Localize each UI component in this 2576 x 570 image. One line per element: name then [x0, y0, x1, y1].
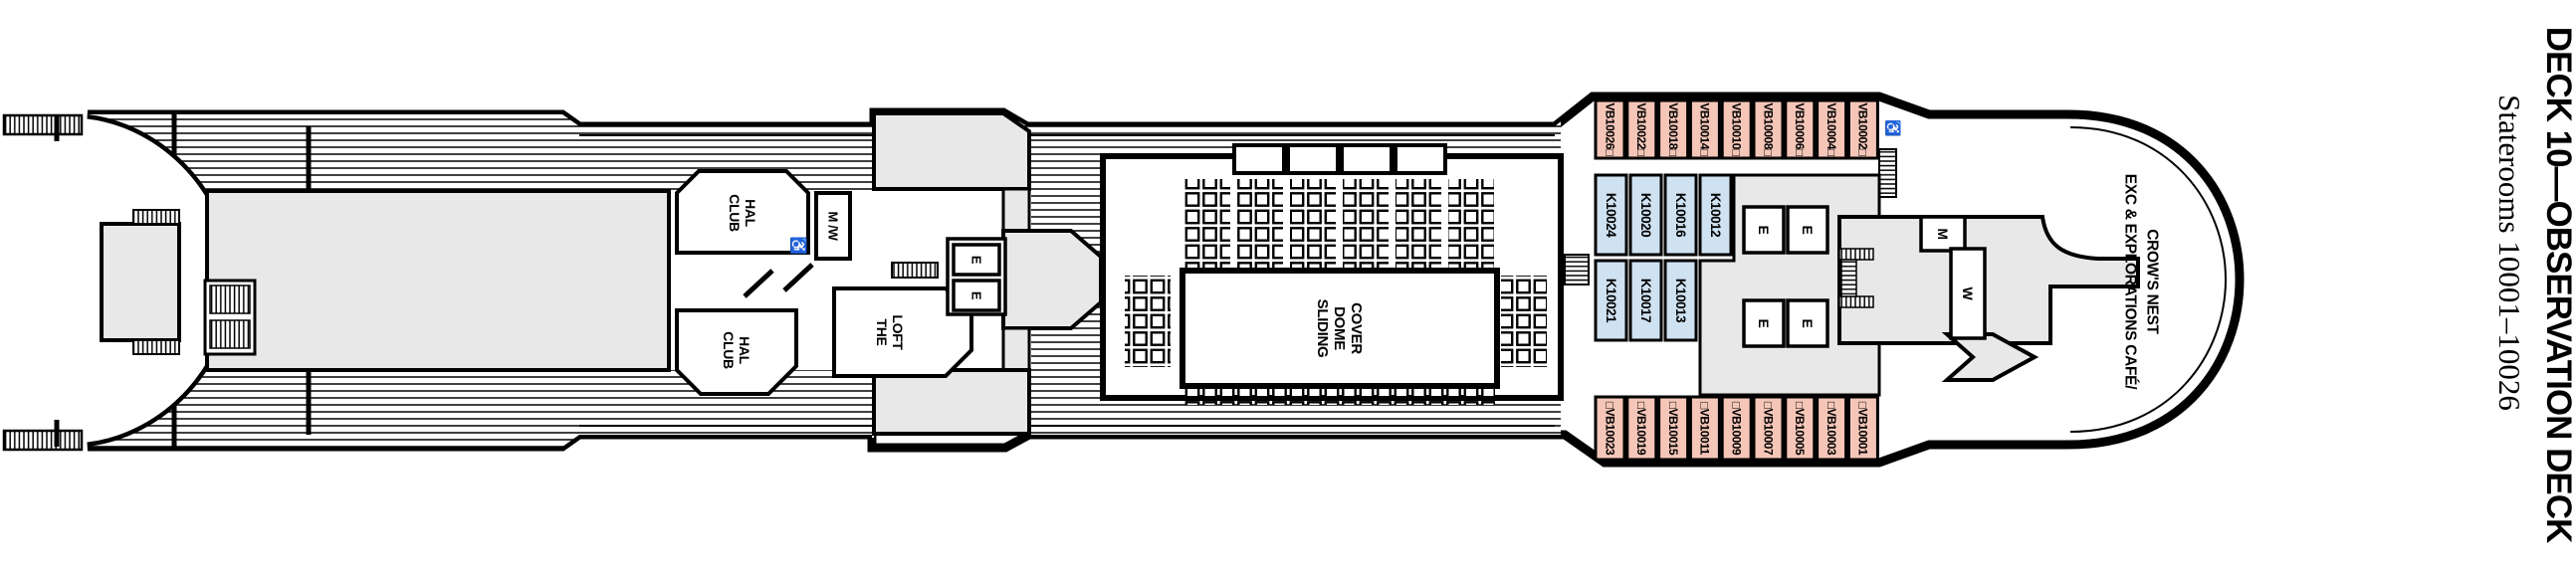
stateroom-label: VB10002□: [1856, 102, 1870, 156]
stateroom-K10017: K10017: [1630, 261, 1661, 340]
svg-text:HAL: HAL: [743, 199, 758, 228]
stateroom-label: K10012: [1708, 193, 1723, 237]
stateroom-K10013: K10013: [1665, 261, 1696, 340]
stateroom-label: □VB10007: [1761, 402, 1775, 456]
forward-elevator-4-label: E: [1800, 318, 1816, 327]
sliding-dome-label: SLIDING DOME COVER: [1314, 299, 1365, 358]
mw-restroom-label: M /W: [825, 211, 840, 241]
stateroom-label: □VB10015: [1666, 402, 1680, 456]
stateroom-K10021: K10021: [1596, 261, 1626, 340]
stateroom-label: □VB10005: [1793, 402, 1807, 456]
forward-side-stairs: [1879, 149, 1896, 197]
stateroom-VB10015: □VB10015: [1659, 397, 1688, 460]
stateroom-label: □VB10009: [1730, 402, 1744, 456]
stateroom-label: K10024: [1604, 193, 1618, 238]
pool-cabana-1: [1234, 145, 1284, 173]
stateroom-label: VB10018□: [1666, 102, 1680, 156]
stern-platform-bottom: [4, 431, 82, 450]
svg-text:DOME: DOME: [1331, 306, 1348, 350]
stateroom-VB10018: VB10018□: [1659, 100, 1688, 158]
stateroom-VB10014: VB10014□: [1690, 100, 1719, 158]
stateroom-VB10010: VB10010□: [1722, 100, 1751, 158]
stateroom-VB10003: □VB10003: [1818, 397, 1846, 460]
stateroom-K10020: K10020: [1630, 175, 1661, 255]
stateroom-label: VB10014□: [1698, 102, 1712, 156]
stateroom-VB10023: □VB10023: [1596, 397, 1624, 460]
accessible-icon: ♿: [789, 237, 807, 256]
midship-structure-spine-lower: [1003, 328, 1029, 372]
midship-structure: [207, 191, 669, 370]
svg-text:HAL: HAL: [737, 336, 752, 365]
stateroom-VB10026: VB10026□: [1596, 100, 1624, 158]
stateroom-label: □VB10003: [1825, 402, 1838, 456]
stateroom-label: VB10004□: [1825, 102, 1838, 156]
page-title: DECK 10—OBSERVATION DECK: [2539, 27, 2576, 543]
stateroom-label: VB10008□: [1761, 102, 1775, 156]
port-side-stairs: [1565, 255, 1589, 285]
stateroom-label: □VB10019: [1634, 402, 1648, 456]
stateroom-label: VB10026□: [1603, 102, 1616, 156]
the-loft-label: THE LOFT: [874, 314, 906, 350]
midship-elevator-2-label: E: [968, 291, 983, 300]
stateroom-VB10002: VB10002□: [1848, 100, 1877, 158]
stateroom-VB10001: □VB10001: [1848, 397, 1877, 460]
pool-cabana-2: [1288, 145, 1338, 173]
stateroom-VB10022: VB10022□: [1627, 100, 1656, 158]
stateroom-label: □VB10011: [1698, 402, 1712, 455]
stateroom-label: K10016: [1673, 193, 1688, 238]
midship-elevator-1-label: E: [968, 256, 983, 265]
stateroom-label: K10021: [1604, 279, 1618, 323]
mens-restroom-label: M: [1935, 228, 1951, 239]
midship-structure-connector: [1003, 231, 1101, 328]
pool-cabana-4: [1395, 145, 1445, 173]
accessible-icon-forward: ♿: [1884, 119, 1901, 136]
stern-stairwell-flight-1: [210, 285, 250, 313]
stateroom-label: K10013: [1673, 279, 1688, 323]
forward-stairs-flight-2: [1839, 296, 1873, 307]
svg-text:CLUB: CLUB: [727, 194, 743, 232]
stateroom-label: K10020: [1638, 193, 1653, 237]
stateroom-label: □VB10001: [1856, 402, 1870, 456]
svg-text:SLIDING: SLIDING: [1314, 299, 1331, 358]
stateroom-label: VB10006□: [1793, 102, 1807, 156]
stateroom-VB10009: □VB10009: [1722, 397, 1751, 460]
stern-stairwell-flight-2: [210, 320, 250, 348]
stateroom-label: □VB10023: [1603, 402, 1616, 456]
midship-structure-spine-upper: [1003, 189, 1029, 233]
midship-structure-top-wing: [874, 113, 1029, 189]
svg-text:CLUB: CLUB: [721, 331, 737, 369]
womens-restroom-label: W: [1960, 287, 1976, 301]
stateroom-label: K10017: [1638, 279, 1653, 322]
pool-cabana-3: [1342, 145, 1392, 173]
stateroom-K10024: K10024: [1596, 175, 1626, 255]
stern-structure: [102, 224, 179, 340]
club-hal-upper-label: CLUB HAL: [727, 194, 758, 232]
svg-text:COVER: COVER: [1348, 302, 1365, 354]
stern-stairs-lower: [133, 340, 179, 354]
stateroom-K10012: K10012: [1700, 175, 1731, 255]
forward-elevator-2-label: E: [1800, 225, 1816, 234]
stateroom-VB10006: VB10006□: [1786, 100, 1815, 158]
midship-structure-bottom-wing: [874, 370, 1029, 434]
deck-plan: CLUB HAL M /W ♿ CLUB HAL THE LOFT E E: [0, 0, 2576, 570]
stateroom-label: VB10010□: [1730, 102, 1744, 156]
stateroom-VB10005: □VB10005: [1786, 397, 1815, 460]
forward-stairs-flight-1: [1839, 249, 1873, 260]
svg-text:EXC & EXPLORATIONS CAFÉ/: EXC & EXPLORATIONS CAFÉ/: [2122, 174, 2139, 390]
stateroom-VB10008: VB10008□: [1754, 100, 1783, 158]
forward-elevator-1-label: E: [1756, 225, 1772, 234]
stateroom-K10016: K10016: [1665, 175, 1696, 255]
loft-stairs: [892, 263, 938, 278]
club-hal-lower-label: CLUB HAL: [721, 331, 752, 369]
stern-platform-top: [4, 115, 82, 134]
svg-text:LOFT: LOFT: [890, 314, 906, 350]
stateroom-VB10007: □VB10007: [1754, 397, 1783, 460]
forward-elevator-3-label: E: [1756, 318, 1772, 327]
page-subtitle: Staterooms 10001–10026: [2492, 95, 2527, 411]
stateroom-label: VB10022□: [1634, 102, 1648, 156]
svg-text:CROW'S NEST: CROW'S NEST: [2144, 229, 2161, 334]
stateroom-VB10011: □VB10011: [1690, 397, 1719, 460]
stateroom-VB10004: VB10004□: [1818, 100, 1846, 158]
forward-stairs-flight-3: [1841, 260, 1856, 296]
stern-stairs-upper: [133, 210, 179, 224]
stateroom-VB10019: □VB10019: [1627, 397, 1656, 460]
svg-text:THE: THE: [874, 318, 890, 345]
